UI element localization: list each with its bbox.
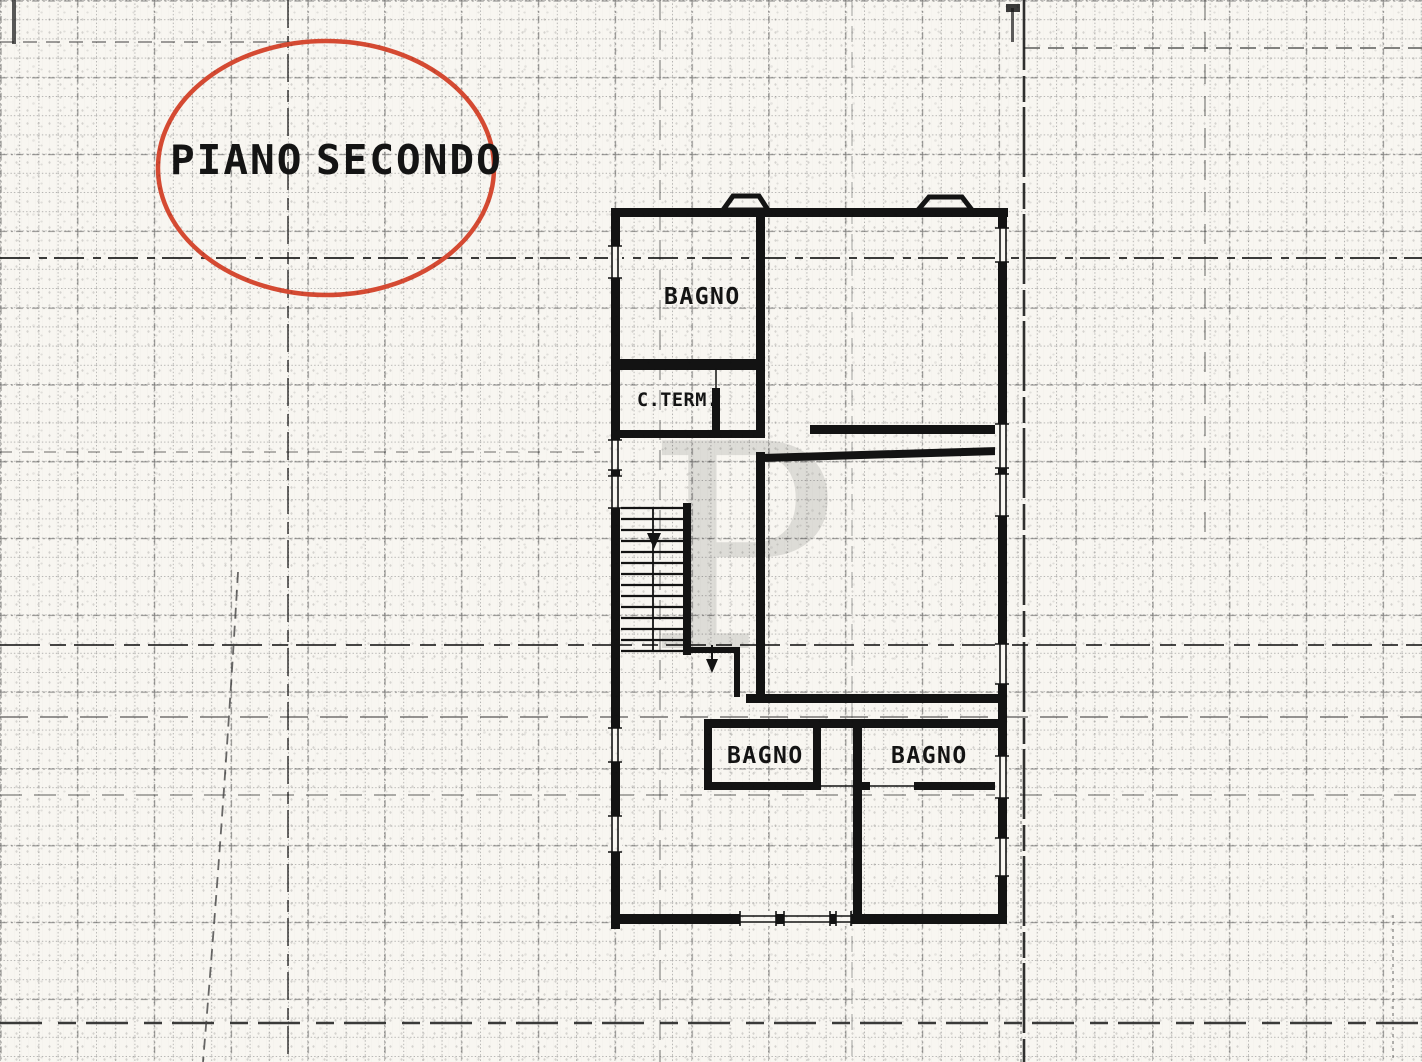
window-opening	[608, 440, 622, 470]
partition-wall	[853, 719, 862, 918]
edge-mark	[12, 0, 16, 44]
window-opening	[740, 911, 776, 926]
room-label-cterm: C.TERM.	[637, 390, 718, 411]
chimney-symbol	[723, 196, 768, 210]
edge-mark	[1011, 8, 1014, 42]
window-opening	[608, 728, 622, 762]
window-opening	[608, 476, 622, 508]
page-title-word1: PIANO	[170, 136, 303, 184]
window-opening	[995, 756, 1009, 798]
window-opening	[995, 644, 1009, 684]
plan-drawing: P	[0, 0, 1422, 1062]
window-opening	[995, 838, 1009, 876]
window-opening	[608, 246, 622, 278]
window-opening	[995, 474, 1009, 516]
room-label-bagno-top: BAGNO	[664, 284, 741, 310]
window-opening	[608, 816, 622, 852]
page-title-word2: SECONDO	[316, 136, 503, 184]
room-label-bagno-bottom-left: BAGNO	[727, 743, 804, 769]
scanned-plan-page: P	[0, 0, 1422, 1062]
room-label-bagno-bottom-right: BAGNO	[891, 743, 968, 769]
window-opening	[995, 424, 1009, 468]
window-opening	[995, 228, 1009, 262]
window-opening	[836, 911, 851, 926]
window-opening	[784, 911, 830, 926]
chimney-symbol	[918, 197, 972, 210]
